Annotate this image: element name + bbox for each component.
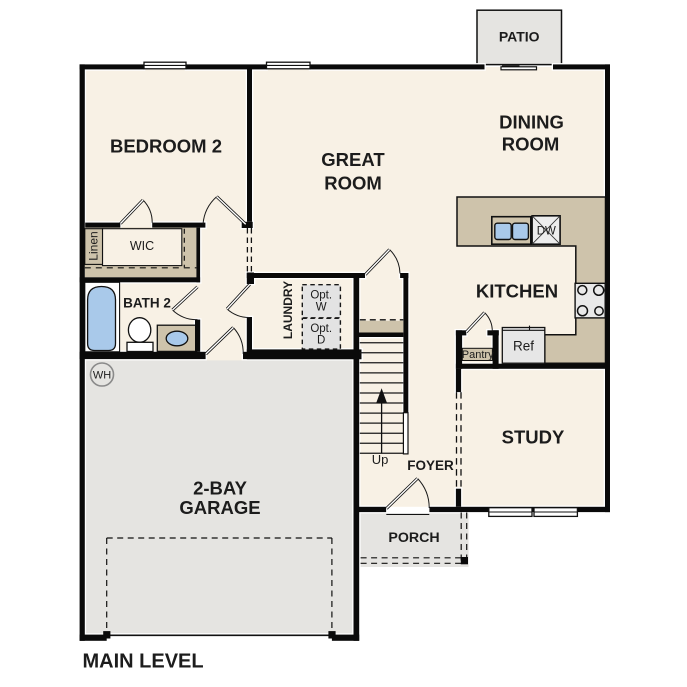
svg-text:Ref: Ref	[513, 339, 534, 354]
svg-text:W: W	[316, 302, 327, 314]
svg-text:Opt.: Opt.	[310, 290, 332, 302]
svg-text:PORCH: PORCH	[388, 530, 439, 546]
svg-text:GREAT: GREAT	[321, 149, 385, 170]
svg-text:WH: WH	[93, 370, 111, 382]
svg-text:BEDROOM 2: BEDROOM 2	[110, 136, 222, 157]
svg-text:ROOM: ROOM	[324, 173, 382, 194]
svg-text:BATH 2: BATH 2	[123, 296, 171, 311]
svg-text:Up: Up	[372, 452, 389, 467]
svg-text:D: D	[317, 335, 325, 347]
svg-text:ROOM: ROOM	[502, 134, 560, 155]
svg-text:Linen: Linen	[87, 231, 101, 260]
svg-text:GARAGE: GARAGE	[179, 497, 260, 518]
svg-text:PATIO: PATIO	[499, 29, 540, 45]
svg-text:STUDY: STUDY	[502, 427, 565, 448]
svg-text:FOYER: FOYER	[407, 458, 454, 473]
svg-text:MAIN LEVEL: MAIN LEVEL	[83, 651, 204, 673]
svg-text:Pantry: Pantry	[462, 349, 494, 361]
svg-text:KITCHEN: KITCHEN	[476, 281, 558, 302]
svg-text:DINING: DINING	[499, 112, 564, 133]
svg-text:Opt.: Opt.	[310, 323, 332, 335]
svg-text:LAUNDRY: LAUNDRY	[281, 281, 295, 339]
svg-text:2-BAY: 2-BAY	[193, 478, 247, 499]
svg-text:WIC: WIC	[130, 239, 154, 253]
svg-text:DW: DW	[537, 225, 556, 237]
